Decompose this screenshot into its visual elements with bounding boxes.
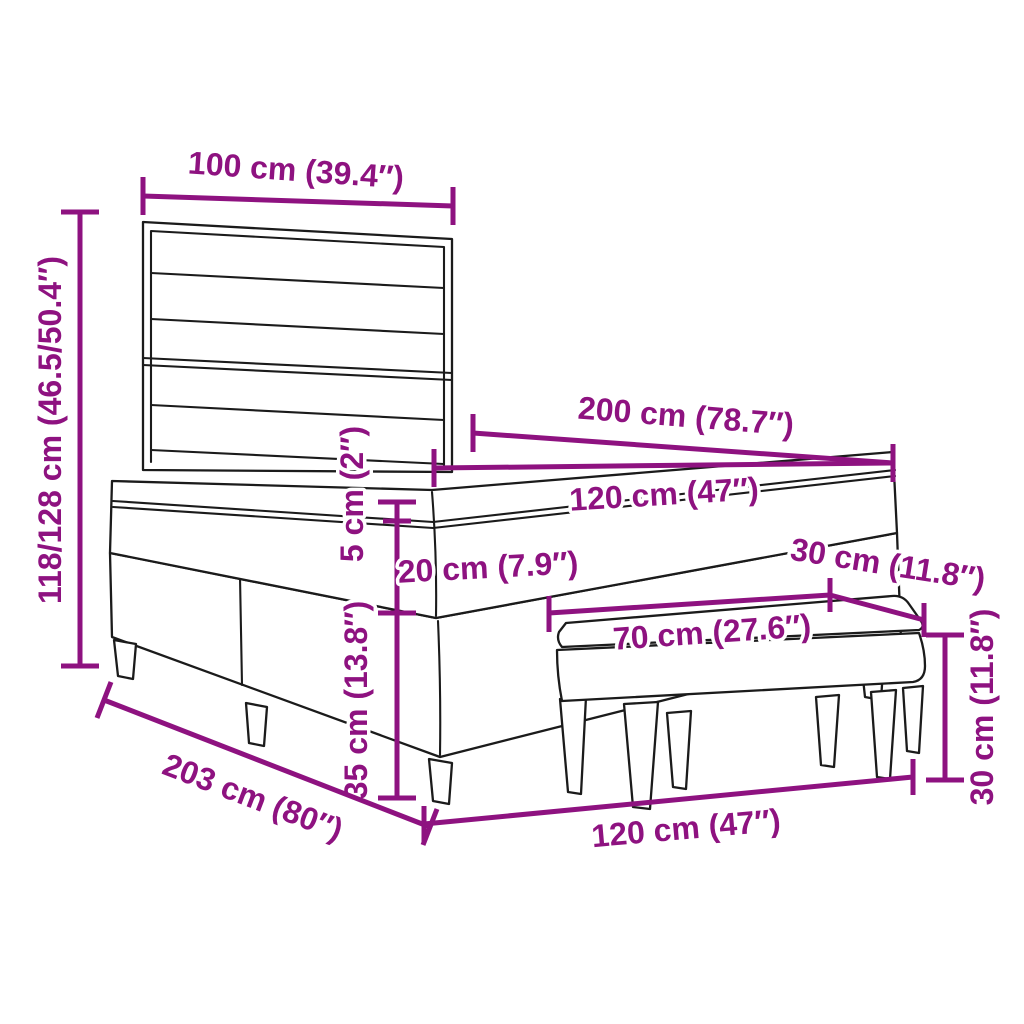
bed-leg — [429, 759, 452, 804]
bed-dimension-diagram: 100 cm (39.4″) 118/128 cm (46.5/50.4″) 2… — [0, 0, 1024, 1024]
dim-label-base-height: 35 cm (13.8″) — [338, 601, 374, 800]
bench-leg — [816, 695, 839, 767]
bed-leg — [246, 703, 267, 746]
dim-label-topper-thickness: 5 cm (2″) — [334, 426, 370, 562]
headboard — [143, 222, 452, 472]
bed-leg — [114, 640, 136, 679]
diagram-canvas: 100 cm (39.4″) 118/128 cm (46.5/50.4″) 2… — [0, 0, 1024, 1024]
headboard-panel — [143, 222, 452, 472]
dim-label-bench-height: 30 cm (11.8″) — [964, 609, 1000, 806]
dim-label-overall-height: 118/128 cm (46.5/50.4″) — [32, 256, 68, 604]
bench-leg — [903, 686, 923, 753]
